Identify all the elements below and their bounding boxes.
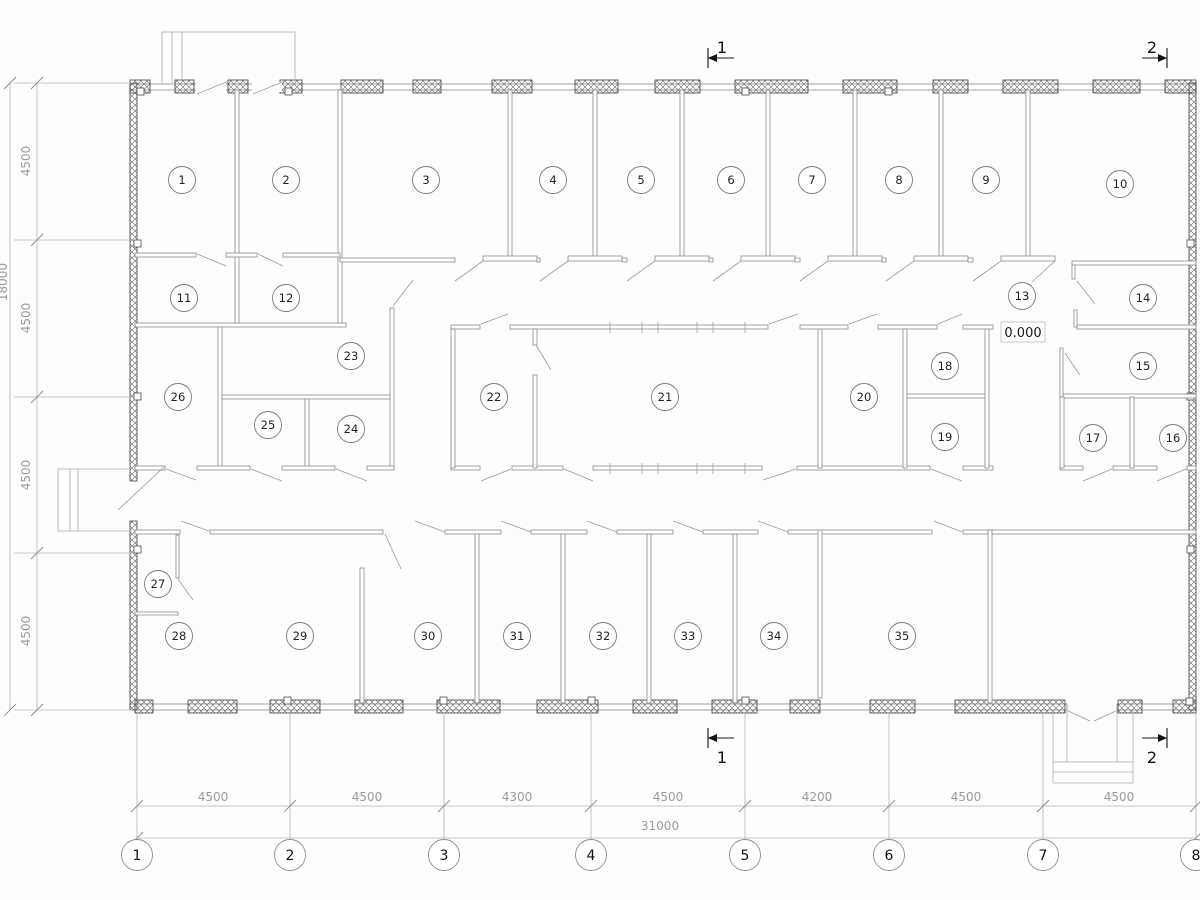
room-number: 19 (938, 430, 953, 444)
room-number: 30 (421, 629, 436, 643)
room-number: 33 (681, 629, 696, 643)
room-number: 20 (857, 390, 872, 404)
top-door-opening (252, 82, 282, 92)
dim-value: 4500 (19, 616, 33, 647)
axis-number: 3 (440, 848, 449, 864)
axis-number: 1 (133, 848, 142, 864)
room-number: 2 (282, 173, 289, 187)
room-number: 21 (658, 390, 673, 404)
section-label: 1 (717, 38, 727, 57)
room-number: 8 (895, 173, 902, 187)
room-number: 25 (261, 418, 276, 432)
room-number: 7 (808, 173, 815, 187)
room-number: 17 (1086, 431, 1101, 445)
section-label: 2 (1147, 748, 1157, 767)
room-number: 27 (151, 577, 166, 591)
room-number: 13 (1015, 289, 1030, 303)
room-number: 18 (938, 359, 953, 373)
total-dim-left: 18000 (0, 263, 10, 301)
axis-number: 2 (286, 848, 295, 864)
room-number: 5 (637, 173, 644, 187)
dim-value: 4200 (802, 790, 833, 804)
bottom-windows (135, 700, 1196, 713)
room-number: 1 (178, 173, 185, 187)
southeast-porch (1053, 710, 1133, 783)
room-number: 16 (1166, 431, 1181, 445)
top-door-opening (196, 82, 226, 92)
dim-value: 4500 (352, 790, 383, 804)
section-arrow (1158, 734, 1167, 742)
room-number: 10 (1113, 177, 1128, 191)
total-dim-bottom: 31000 (641, 819, 679, 833)
room-number: 28 (172, 629, 187, 643)
axis-number: 6 (885, 848, 894, 864)
room-number: 32 (596, 629, 611, 643)
room-number: 23 (344, 349, 359, 363)
left-wall-upper (130, 83, 137, 481)
room-number: 34 (767, 629, 782, 643)
section-arrow (1158, 54, 1167, 62)
room-number: 11 (177, 291, 192, 305)
room-number: 15 (1136, 359, 1151, 373)
floor-plan-sheet: 0.000 4500450043004500420045004500450045… (0, 0, 1200, 900)
room-number: 24 (344, 422, 359, 436)
section-arrow (708, 54, 717, 62)
dim-value: 4500 (19, 460, 33, 491)
dim-value: 4500 (1104, 790, 1135, 804)
west-porch (58, 469, 132, 531)
room-number: 6 (727, 173, 734, 187)
axis-number: 7 (1039, 848, 1048, 864)
dim-value: 4500 (653, 790, 684, 804)
floor-plan-canvas: 0.000 4500450043004500420045004500450045… (0, 0, 1200, 900)
elevation-marker: 0.000 (1001, 322, 1045, 342)
dim-value: 4500 (19, 303, 33, 334)
dim-value: 4300 (502, 790, 533, 804)
room-number: 35 (895, 629, 910, 643)
section-arrow (708, 734, 717, 742)
dim-value: 4500 (19, 146, 33, 177)
room-number: 14 (1136, 291, 1151, 305)
axis-number: 4 (587, 848, 596, 864)
axis-number: 5 (741, 848, 750, 864)
room-number: 9 (982, 173, 989, 187)
dim-value: 4500 (951, 790, 982, 804)
section-label: 1 (717, 748, 727, 767)
dim-value: 4500 (198, 790, 229, 804)
room-number: 22 (487, 390, 502, 404)
elevation-label: 0.000 (1004, 326, 1041, 341)
room-number: 29 (293, 629, 308, 643)
room-number: 4 (549, 173, 556, 187)
room-number: 26 (171, 390, 186, 404)
room-number: 12 (279, 291, 294, 305)
room-number: 3 (422, 173, 429, 187)
section-label: 2 (1147, 38, 1157, 57)
section-markers: 1122 (708, 38, 1167, 767)
room-number: 31 (510, 629, 525, 643)
axis-number: 8 (1192, 848, 1200, 864)
